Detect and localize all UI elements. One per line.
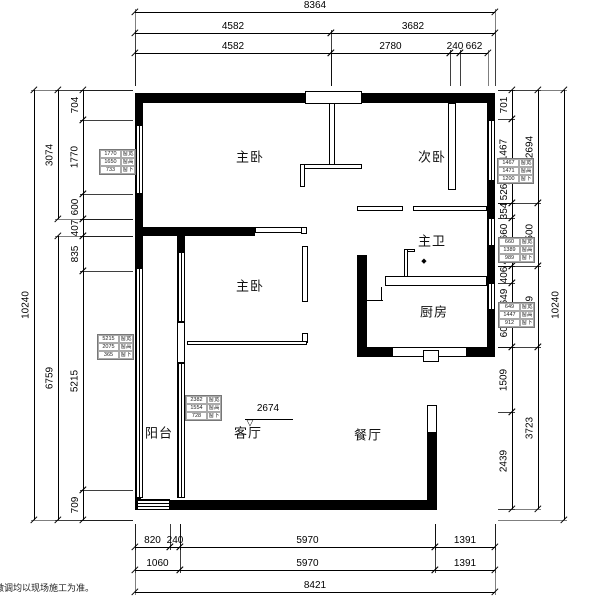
window-spec-cell: 窗宽 — [119, 335, 133, 343]
dimension-label: 835 — [70, 245, 81, 262]
wall — [135, 227, 255, 236]
dimension-line — [135, 570, 180, 571]
level-mark-triangle-icon: ▽ — [247, 418, 254, 429]
dimension-label: 5970 — [296, 535, 318, 546]
window-spec-table: 2382窗宽1554窗高728窗下 — [185, 395, 222, 421]
window-spec-cell: 窗高 — [519, 167, 533, 175]
extension-line — [135, 50, 136, 86]
dimension-line — [538, 266, 539, 347]
dimension-label: 3723 — [525, 417, 536, 439]
wall — [487, 310, 495, 347]
dimension-label: 5215 — [70, 369, 81, 391]
window — [135, 125, 143, 194]
extension-line — [80, 219, 133, 220]
window — [177, 252, 185, 322]
wall — [404, 249, 408, 277]
extension-line — [80, 120, 133, 121]
extension-line — [80, 236, 133, 237]
extension-line — [495, 524, 496, 595]
dimension-line — [460, 53, 488, 54]
window-spec-cell: 1471 — [498, 167, 519, 175]
dimension-label: 1391 — [454, 558, 476, 569]
dimension-line — [58, 236, 59, 520]
dimension-label: 526 — [499, 184, 510, 201]
window-spec-table: 1467窗宽1471窗高1200窗下 — [497, 158, 534, 184]
window — [177, 363, 185, 498]
extension-line — [80, 90, 133, 91]
dimension-line — [180, 547, 435, 548]
wall — [329, 103, 335, 168]
wall — [423, 350, 439, 362]
window-spec-cell: 989 — [499, 254, 520, 262]
room-label-dining-room: 餐厅 — [354, 425, 382, 444]
dimension-label: 2780 — [379, 41, 401, 52]
dimension-label: 2694 — [525, 135, 536, 157]
dimension-line — [180, 570, 435, 571]
window-spec-table: 660窗宽1389窗高989窗下 — [498, 237, 535, 263]
window-spec-cell: 2382 — [186, 396, 207, 404]
window-spec-cell: 5215 — [98, 335, 119, 343]
dimension-label: 8364 — [304, 0, 326, 11]
wall — [487, 181, 495, 218]
window-spec-cell: 窗下 — [119, 351, 133, 359]
dimension-line — [135, 592, 495, 593]
wall — [300, 164, 362, 169]
window-spec-cell: 窗宽 — [207, 396, 221, 404]
window-spec-cell: 窗下 — [520, 319, 534, 327]
window-spec-cell: 窗宽 — [121, 150, 135, 158]
window-spec-cell: 912 — [499, 319, 520, 327]
dimension-line — [538, 90, 539, 203]
wall — [177, 322, 185, 363]
dimension-line — [135, 33, 331, 34]
window-spec-cell: 2075 — [98, 343, 119, 351]
dimension-line — [58, 90, 59, 219]
diamond-icon: ◆ — [421, 257, 426, 265]
window-spec-cell: 窗下 — [520, 254, 534, 262]
wall — [427, 432, 437, 510]
wall — [301, 227, 307, 234]
dimension-line — [135, 53, 331, 54]
window-spec-cell: 1770 — [100, 150, 121, 158]
dimension-line — [135, 12, 495, 13]
dimension-label: 1391 — [454, 535, 476, 546]
dimension-label: 407 — [70, 219, 81, 236]
window-spec-cell: 1467 — [498, 159, 519, 167]
dimension-label: 4582 — [222, 21, 244, 32]
window — [487, 283, 495, 310]
wall — [135, 93, 305, 103]
dimension-line — [564, 90, 565, 520]
window-spec-cell: 649 — [499, 303, 520, 311]
extension-line — [488, 50, 489, 86]
window-spec-cell: 窗宽 — [519, 159, 533, 167]
window-spec-cell: 窗高 — [119, 343, 133, 351]
window-spec-cell: 1447 — [499, 311, 520, 319]
window-spec-cell: 窗高 — [520, 246, 534, 254]
wall — [487, 246, 495, 283]
dimension-label: 1770 — [70, 146, 81, 168]
window-spec-cell: 窗宽 — [520, 238, 534, 246]
dimension-label: 600 — [70, 198, 81, 215]
extension-line — [460, 50, 461, 86]
wall — [385, 276, 487, 286]
window-spec-cell: 窗高 — [520, 311, 534, 319]
wall — [357, 347, 392, 357]
extension-line — [435, 524, 436, 573]
extension-line — [495, 30, 496, 86]
extension-line — [331, 50, 332, 86]
wall — [135, 93, 143, 125]
dimension-label: 820 — [144, 535, 161, 546]
dimension-line — [512, 412, 513, 509]
wall — [135, 236, 143, 268]
window-spec-cell: 733 — [100, 166, 121, 174]
window-spec-table: 1770窗宽1650窗高733窗下 — [99, 149, 136, 175]
window-spec-cell: 1200 — [498, 175, 519, 183]
dimension-line — [83, 490, 84, 520]
extension-line — [80, 490, 133, 491]
extension-line — [80, 194, 133, 195]
window-spec-cell: 728 — [186, 412, 207, 420]
wall — [413, 206, 487, 211]
extension-line — [498, 520, 567, 521]
wall — [357, 255, 367, 347]
dimension-label: 662 — [466, 41, 483, 52]
window-spec-cell: 1389 — [499, 246, 520, 254]
window-spec-cell: 1554 — [186, 404, 207, 412]
dimension-label: 2439 — [499, 449, 510, 471]
dimension-label: 701 — [499, 96, 510, 113]
dimension-label: 4582 — [222, 41, 244, 52]
level-mark-value: 2674 — [257, 403, 279, 414]
dimension-label: 5970 — [296, 558, 318, 569]
extension-line — [80, 271, 133, 272]
window-spec-cell: 窗下 — [121, 166, 135, 174]
window — [137, 499, 170, 510]
dimension-line — [83, 90, 84, 120]
dimension-label: 10240 — [20, 291, 31, 319]
extension-line — [135, 524, 136, 595]
window-spec-cell: 1650 — [100, 158, 121, 166]
wall — [255, 227, 307, 233]
window-spec-cell: 窗下 — [519, 175, 533, 183]
wall — [427, 405, 437, 433]
dimension-line — [435, 570, 495, 571]
wall — [170, 500, 437, 510]
window — [487, 120, 495, 181]
dimension-line — [538, 347, 539, 509]
dimension-label: 406 — [499, 266, 510, 283]
window-spec-table: 5215窗宽2075窗高365窗下 — [97, 334, 134, 360]
window-spec-cell: 窗宽 — [520, 303, 534, 311]
window — [487, 218, 495, 246]
dimension-line — [512, 90, 513, 119]
wall — [177, 236, 185, 252]
wall — [302, 246, 308, 302]
extension-line — [80, 520, 133, 521]
wall — [357, 206, 403, 211]
dimension-line — [538, 203, 539, 266]
dimension-label: 10240 — [550, 291, 561, 319]
dimension-line — [34, 90, 35, 520]
window-spec-cell: 660 — [499, 238, 520, 246]
dimension-line — [83, 120, 84, 194]
room-label-balcony: 阳台 — [145, 423, 173, 442]
extension-line — [450, 50, 451, 86]
room-label-second-bedroom: 次卧 — [418, 147, 446, 166]
dimension-label: 3682 — [402, 21, 424, 32]
window-spec-cell: 窗高 — [121, 158, 135, 166]
dimension-label: 704 — [70, 97, 81, 114]
room-label-master-bedroom-mid: 主卧 — [236, 276, 264, 295]
window — [135, 268, 143, 498]
window-spec-cell: 窗下 — [207, 412, 221, 420]
dimension-line — [83, 271, 84, 490]
dimension-label: 8421 — [304, 580, 326, 591]
dimension-line — [135, 547, 170, 548]
room-label-kitchen: 厨房 — [420, 302, 448, 321]
room-label-master-bath: 主卫 — [418, 231, 446, 250]
floor-plan-canvas: 8364458236824582278024066282024059701391… — [0, 0, 600, 600]
dimension-label: 1509 — [499, 368, 510, 390]
wall — [187, 341, 307, 345]
wall — [448, 103, 456, 190]
window-spec-table: 649窗宽1447窗高912窗下 — [498, 302, 535, 328]
window-spec-cell: 365 — [98, 351, 119, 359]
dimension-line — [331, 53, 450, 54]
room-label-master-bedroom-top: 主卧 — [236, 147, 264, 166]
wall — [362, 93, 495, 103]
dimension-label: 709 — [70, 497, 81, 514]
wall — [467, 347, 495, 357]
dimension-label: 6759 — [45, 367, 56, 389]
dimension-line — [83, 236, 84, 271]
dimension-line — [331, 33, 495, 34]
wall — [487, 93, 495, 120]
extension-line — [180, 524, 181, 573]
footnote-text: 微调均以现场施工为准。 — [0, 581, 94, 594]
dimension-label: 354 — [499, 202, 510, 219]
dimension-label: 3074 — [45, 143, 56, 165]
dimension-line — [435, 547, 495, 548]
dimension-label: 1060 — [146, 558, 168, 569]
wall — [381, 287, 382, 301]
window-spec-cell: 窗高 — [207, 404, 221, 412]
wall — [300, 164, 305, 187]
dimension-line — [512, 347, 513, 412]
